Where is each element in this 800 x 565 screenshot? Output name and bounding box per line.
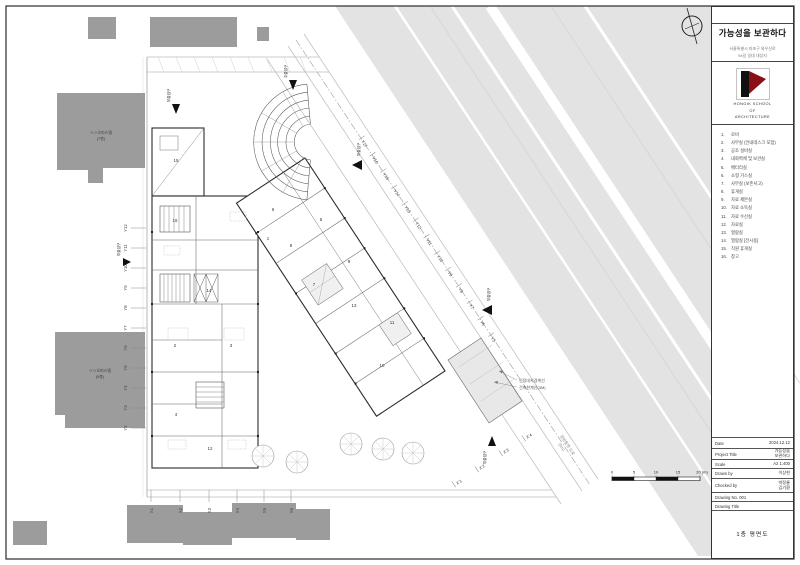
grid-label: Y6 [479, 319, 486, 327]
neighbor-building [88, 17, 116, 39]
entrance-arrow-icon [488, 436, 496, 446]
entrance-label: 부출입구 [166, 88, 171, 102]
grid-label: Y15 [382, 172, 391, 182]
drawing-title-cell: 1층 평면도 [712, 510, 793, 559]
neighbor-label: (7층) [97, 135, 106, 141]
scale-label: 0 [611, 470, 614, 475]
neighbor-building [257, 27, 269, 41]
legend-item: 9.자료 제본실 [721, 196, 790, 204]
grid-label: Y11 [123, 244, 128, 252]
legend-item: 3.공조 설비실 [721, 147, 790, 155]
legend-item: 5.배터리실 [721, 164, 790, 172]
grid-label: Y10 [436, 254, 445, 264]
entrance-label: 부출입구 [486, 287, 491, 301]
room-number: 14 [207, 288, 212, 293]
legend-item: 4.내화벽체 및 보관실 [721, 155, 790, 163]
sheet-address-line1: 서울특별시 마포구 와우산로 [712, 46, 793, 51]
legend-item: 13.열람실 [721, 229, 790, 237]
tree [286, 451, 308, 473]
room-number: 15 [174, 158, 179, 163]
street-grid-item: Y9 [445, 267, 455, 278]
room-number: 13 [352, 303, 357, 308]
grid-label: Y11 [425, 237, 434, 246]
titleblock-row-scale: Scale A2 1:400 [712, 459, 793, 468]
drawn-by-value: 이상현 [778, 471, 790, 476]
school-logo-icon [736, 68, 770, 100]
titleblock-row-project: Project Title 가능성을 보관하다 [712, 448, 793, 459]
street-grid-item: Y5 [488, 333, 498, 344]
grid-label: X1 [149, 507, 154, 513]
entrance-arrow-icon [352, 160, 362, 170]
legend-item: 12.자료실 [721, 221, 790, 229]
legend-item: 15.직원 휴게실 [721, 245, 790, 253]
grid-label: Y2 [123, 425, 128, 431]
titleblock-row-checked: Checked by 박정룡 김기환 [712, 478, 793, 492]
grid-label: X4 [235, 507, 240, 513]
entrance-label: 부출입구 [356, 142, 361, 156]
scale-label: 10 [654, 470, 659, 475]
neighbor-building [127, 505, 183, 543]
legend-item: 11.자료 수선실 [721, 213, 790, 221]
scale-label: 15 [676, 470, 681, 475]
entrance-marker: 부출입구 [352, 142, 362, 170]
titleblock-row-drawn: Drawn by 이상현 [712, 468, 793, 478]
drawing-number: Drawing No. 001 [715, 495, 746, 500]
scale-value: A2 1:400 [773, 462, 790, 467]
plan-svg: ㅇㅇ오피스텔 (7층) ㅇㅇ오피스텔 (5층) [0, 0, 800, 565]
neighbor-building [296, 509, 330, 540]
date-value: 2024.12.12 [769, 441, 790, 446]
neighbor-building [183, 512, 232, 545]
tree [372, 438, 394, 460]
diag-grid-item: X'1 [452, 476, 464, 487]
room-number: 10 [380, 363, 385, 368]
legend-item: 16.창고 [721, 253, 790, 261]
street-grid-item: Y13 [402, 201, 414, 214]
entrance-marker: 부출입구 [482, 436, 496, 464]
legend-item: 2.사무실 (안내데스크 포함) [721, 139, 790, 147]
neighbor-label: ㅇㅇ오피스텔 [90, 129, 112, 135]
legend-item: 7.사무실 (보존서고) [721, 180, 790, 188]
entrance-label: 부출입구 [116, 242, 121, 256]
titleblock-row-date: Date 2024.12.12 [712, 437, 793, 448]
grid-label: Y14 [393, 188, 402, 198]
grid-label: Y7 [468, 303, 475, 311]
diag-grid-item: X'3 [499, 445, 511, 456]
street-grid-item: Y6 [478, 316, 488, 327]
grid-label: Y9 [123, 285, 128, 291]
scale-label: 5 [633, 470, 636, 475]
scale-label: 20 (m) [696, 470, 708, 475]
neighbor-building [55, 332, 145, 428]
grid-label: Y6 [123, 345, 128, 351]
sheet-address-line2: 94길 일대 대상지 [712, 53, 793, 58]
grid-label: X'3 [502, 447, 510, 455]
tree [252, 445, 274, 467]
titleblock-row-number: Drawing No. 001 [712, 492, 793, 501]
street-grid-item: Y7 [467, 300, 477, 311]
grid-label: Y8 [123, 305, 128, 311]
room-legend: 1.로비 2.사무실 (안내데스크 포함) 3.공조 설비실 4.내화벽체 및 … [721, 131, 790, 262]
grid-label: X5 [262, 507, 267, 513]
trees [252, 433, 424, 473]
room-number: 16 [173, 218, 178, 223]
grid-label: Y9 [447, 270, 454, 278]
legend-item: 14.열람실 [전시용] [721, 237, 790, 245]
grid-label: X3 [207, 507, 212, 513]
grid-label: X'4 [525, 432, 533, 440]
school-name-line1: HONGIK SCHOOL [712, 102, 793, 107]
room-number: 11 [390, 320, 395, 325]
diag-grid-item: X'4 [522, 430, 534, 441]
neighbor-label: ㅇㅇ오피스텔 [89, 367, 111, 373]
entrance-marker: 부출입구 [166, 88, 180, 114]
grid-label: Y5 [123, 365, 128, 371]
legend-item: 8.휴게실 [721, 188, 790, 196]
neighbor-building [13, 521, 47, 545]
grid-label: X2 [178, 507, 183, 513]
entrance-label: 주출입구 [283, 64, 288, 78]
grid-label: X6 [289, 507, 294, 513]
grid-label: Y16 [371, 155, 380, 165]
grid-label: Y12 [123, 224, 128, 232]
legend-item: 6.소형 가스실 [721, 172, 790, 180]
grid-label: Y17 [360, 139, 369, 149]
entrance-label: 부출입구 [482, 450, 487, 464]
school-name-line3: ARCHITECTURE [712, 115, 793, 120]
entrance-arrow-icon [289, 80, 297, 90]
grid-ticks-bottom [151, 490, 291, 502]
divider [712, 23, 793, 24]
legend-item: 1.로비 [721, 131, 790, 139]
neighbor-label: (5층) [96, 373, 105, 379]
divider [712, 61, 793, 62]
checked-by-value: 박정룡 김기환 [778, 481, 790, 491]
street-grid-item: Y16 [370, 152, 382, 165]
entrance-marker: 부출입구 [482, 287, 492, 315]
titleblock-row-title-label: Drawing Title [712, 501, 793, 510]
entrance-arrow-icon [172, 104, 180, 114]
annotation-setback: 건축한계선(3M) [519, 384, 546, 390]
neighbor-building [150, 17, 237, 47]
sheet-title: 가능성을 보관하다 [712, 27, 793, 39]
room-number: 12 [208, 446, 213, 451]
tree [402, 442, 424, 464]
grid-label: Y3 [123, 405, 128, 411]
legend-item: 10.자료 소독실 [721, 204, 790, 212]
school-logo [712, 68, 793, 105]
entrance-arrow-icon [482, 305, 492, 315]
drawing-title: 1층 평면도 [736, 532, 768, 538]
grid-label: Y8 [457, 287, 464, 295]
school-name-line2: OF [712, 109, 793, 114]
canopy-drive [448, 338, 522, 423]
grid-label: X'1 [455, 478, 463, 486]
grid-label: Y4 [123, 385, 128, 391]
drawing-sheet: ㅇㅇ오피스텔 (7층) ㅇㅇ오피스텔 (5층) [0, 0, 800, 565]
grid-label: Y13 [403, 205, 412, 215]
divider [712, 124, 793, 125]
grid-label: Y7 [123, 325, 128, 331]
tree [340, 433, 362, 455]
road-label: 일방통행 도로 (6m) [554, 433, 577, 459]
project-title-value: 가능성을 보관하다 [775, 449, 790, 459]
grid-label: Y12 [414, 221, 423, 231]
title-block-panel: 가능성을 보관하다 서울특별시 마포구 와우산로 94길 일대 대상지 HONG… [711, 6, 794, 559]
annotation-boundary: 인접대지경계선 [519, 377, 545, 383]
